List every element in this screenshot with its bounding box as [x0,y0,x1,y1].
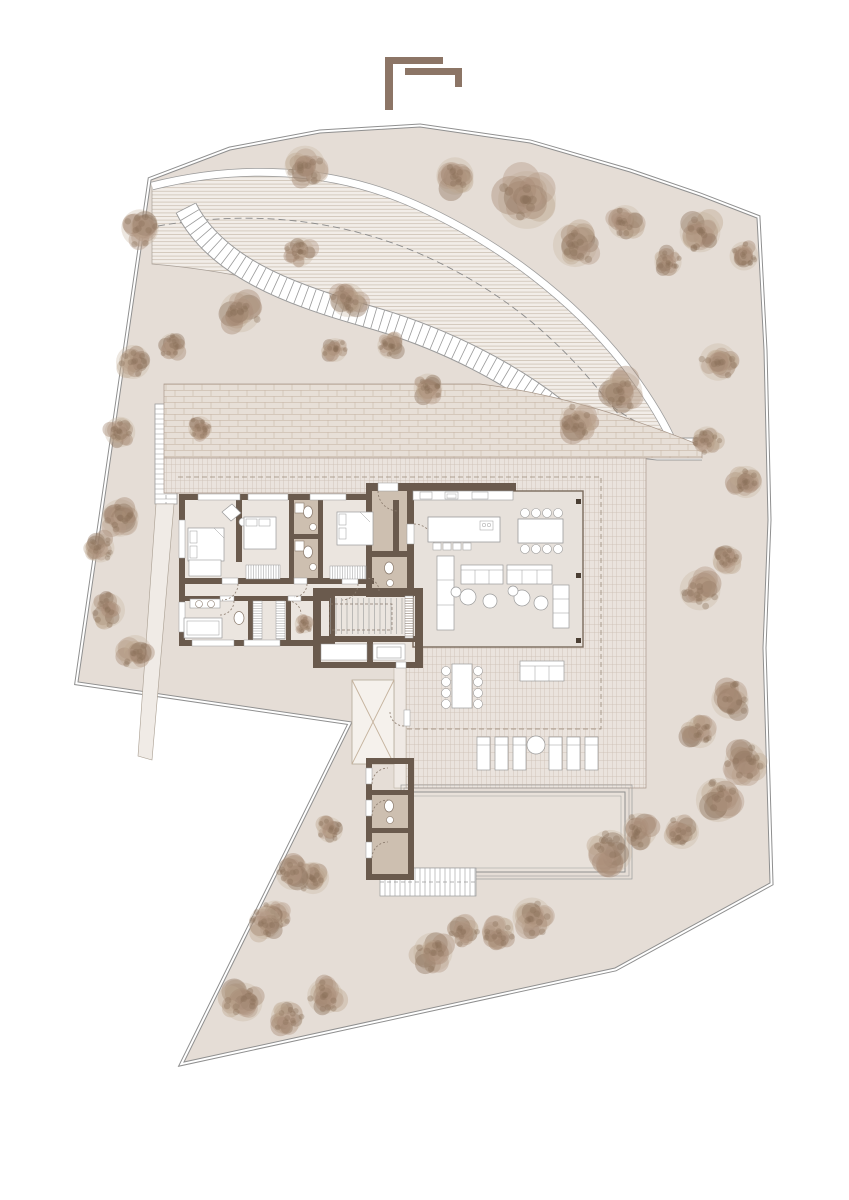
site-plan-page [0,0,849,1200]
site-plan-drawing [0,0,849,1200]
brand-logo [385,57,462,110]
